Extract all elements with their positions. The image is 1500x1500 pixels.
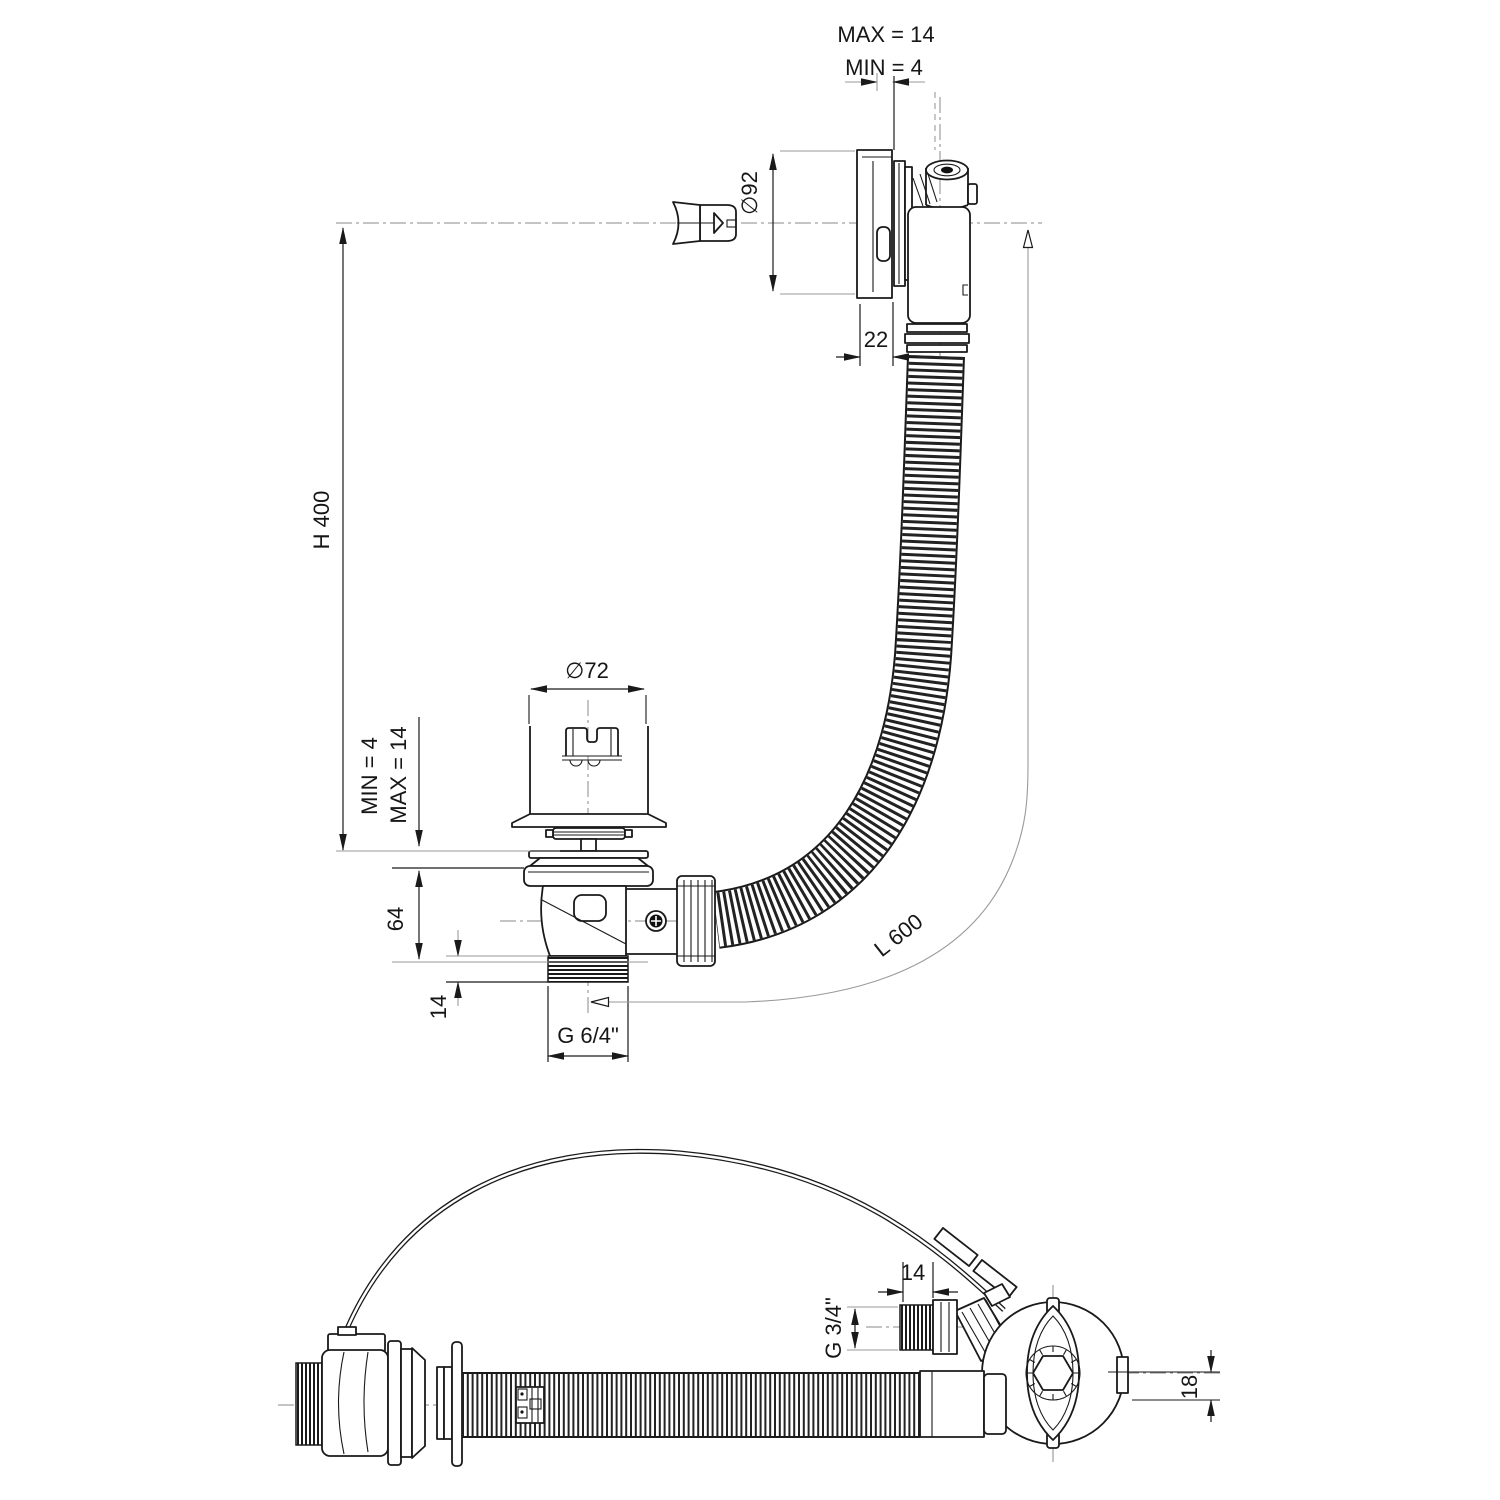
overflow-inlet-thread — [900, 1300, 957, 1354]
hose-clamp — [516, 1387, 544, 1423]
hose-nut — [677, 876, 715, 966]
dim-overflow-thread-size-label: G 3/4" — [821, 1297, 846, 1359]
drain-assembly — [512, 726, 715, 982]
upper-view: MAX = 14 MIN = 4 ∅92 22 H 400 ∅72 MIN = … — [309, 22, 1042, 1062]
lower-view: 14 G 3/4" 18 — [278, 1151, 1220, 1466]
dim-hose-axis-offset-label: 18 — [1177, 1375, 1202, 1399]
lower-hose — [462, 1371, 1006, 1437]
dim-overflow-thread-length-label: 14 — [901, 1260, 925, 1285]
screw-icon — [646, 911, 666, 931]
dim-max-top-label: MAX = 14 — [837, 22, 934, 47]
bath-drain-technical-drawing: MAX = 14 MIN = 4 ∅92 22 H 400 ∅72 MIN = … — [0, 0, 1500, 1500]
technical-drawing-page: MAX = 14 MIN = 4 ∅92 22 H 400 ∅72 MIN = … — [0, 0, 1500, 1500]
dim-drain-thread-size-label: G 6/4" — [557, 1023, 619, 1048]
dim-height-label: H 400 — [309, 491, 334, 550]
control-cable — [346, 1151, 1017, 1331]
dim-overflow-depth-label: 22 — [864, 327, 888, 352]
dim-plug-min-label: MIN = 4 — [357, 737, 382, 815]
overflow-knob-side-view — [673, 202, 736, 244]
overflow-assembly — [716, 150, 977, 920]
drain-side-view — [296, 1327, 462, 1466]
overflow-hose — [716, 356, 936, 920]
dim-drain-thread-length-label: 14 — [426, 995, 451, 1019]
dim-overflow-diameter-label: ∅92 — [737, 171, 762, 215]
dim-min-top-label: MIN = 4 — [845, 55, 923, 80]
cable-connector — [913, 161, 977, 210]
plug-knob — [562, 728, 622, 766]
dim-plug-max-label: MAX = 14 — [386, 726, 411, 823]
dim-plug-diameter-label: ∅72 — [565, 658, 609, 683]
dim-hose-length-label: L 600 — [869, 909, 927, 962]
dim-drain-body-height-label: 64 — [383, 907, 408, 931]
